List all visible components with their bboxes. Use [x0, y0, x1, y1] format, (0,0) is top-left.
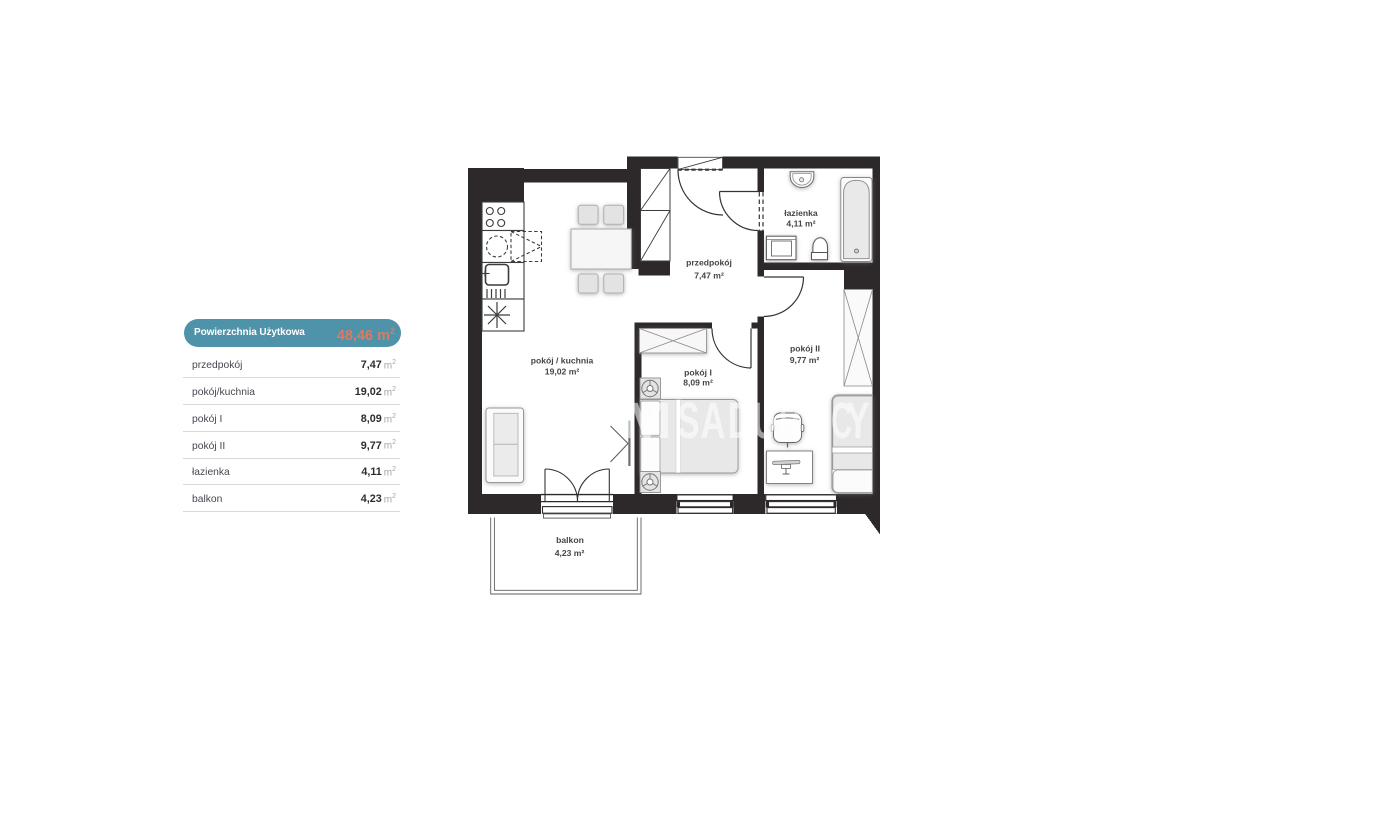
svg-text:balkon: balkon	[556, 535, 584, 545]
svg-text:pokój / kuchnia: pokój / kuchnia	[531, 356, 594, 366]
svg-text:U: U	[754, 392, 777, 449]
svg-text:19,02 m²: 19,02 m²	[545, 366, 580, 376]
svg-text:8,09 m²: 8,09 m²	[683, 378, 713, 388]
svg-text:A: A	[701, 392, 726, 449]
svg-text:7,47 m²: 7,47 m²	[694, 271, 724, 281]
svg-text:4,11 m²: 4,11 m²	[786, 219, 815, 229]
svg-text:S: S	[678, 392, 700, 449]
svg-text:S: S	[804, 392, 826, 449]
svg-text:M: M	[622, 392, 672, 449]
svg-text:pokój I: pokój I	[684, 368, 712, 378]
svg-text:D: D	[728, 392, 751, 449]
svg-text:R: R	[779, 392, 801, 449]
svg-text:pokój II: pokój II	[790, 344, 820, 354]
svg-text:9,77 m²: 9,77 m²	[790, 355, 820, 365]
svg-text:łazienka: łazienka	[784, 208, 818, 218]
svg-text:4,23 m²: 4,23 m²	[555, 548, 585, 558]
svg-text:przedpokój: przedpokój	[686, 258, 732, 268]
svg-text:Y: Y	[847, 392, 870, 449]
